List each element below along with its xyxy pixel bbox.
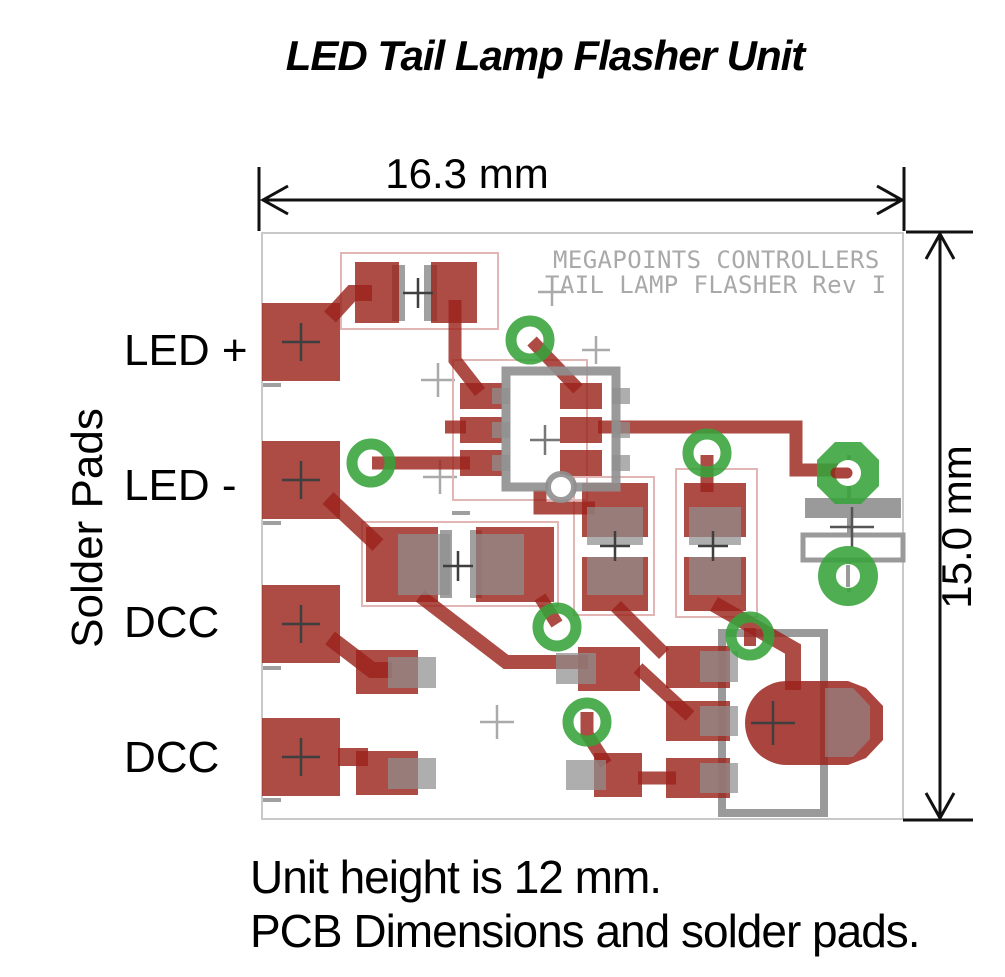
pad-label-led-minus: LED - (124, 461, 284, 513)
silkscreen-line-2: TAIL LAMP FLASHER Rev I (545, 271, 887, 299)
mount-hole-round (818, 546, 878, 606)
width-dimension-label: 16.3 mm (367, 150, 567, 198)
footnote-line-2: PCB Dimensions and solder pads. (250, 904, 920, 958)
footnote-line-1: Unit height is 12 mm. (250, 850, 661, 904)
pcb-dimension-diagram: LED Tail Lamp Flasher Unit 16.3 mm 15.0 … (0, 0, 1005, 977)
solder-pads-label: Solder Pads (62, 388, 114, 668)
width-dimension (259, 167, 904, 231)
silkscreen-line-1: MEGAPOINTS CONTROLLERS (553, 246, 880, 274)
pad-label-dcc-2: DCC (124, 733, 284, 785)
page-title: LED Tail Lamp Flasher Unit (250, 32, 840, 80)
pad-label-dcc-1: DCC (124, 598, 284, 650)
mount-hole-octagon (817, 442, 879, 504)
height-dimension-label: 15.0 mm (932, 427, 982, 627)
pad-label-led-plus: LED + (124, 326, 284, 378)
